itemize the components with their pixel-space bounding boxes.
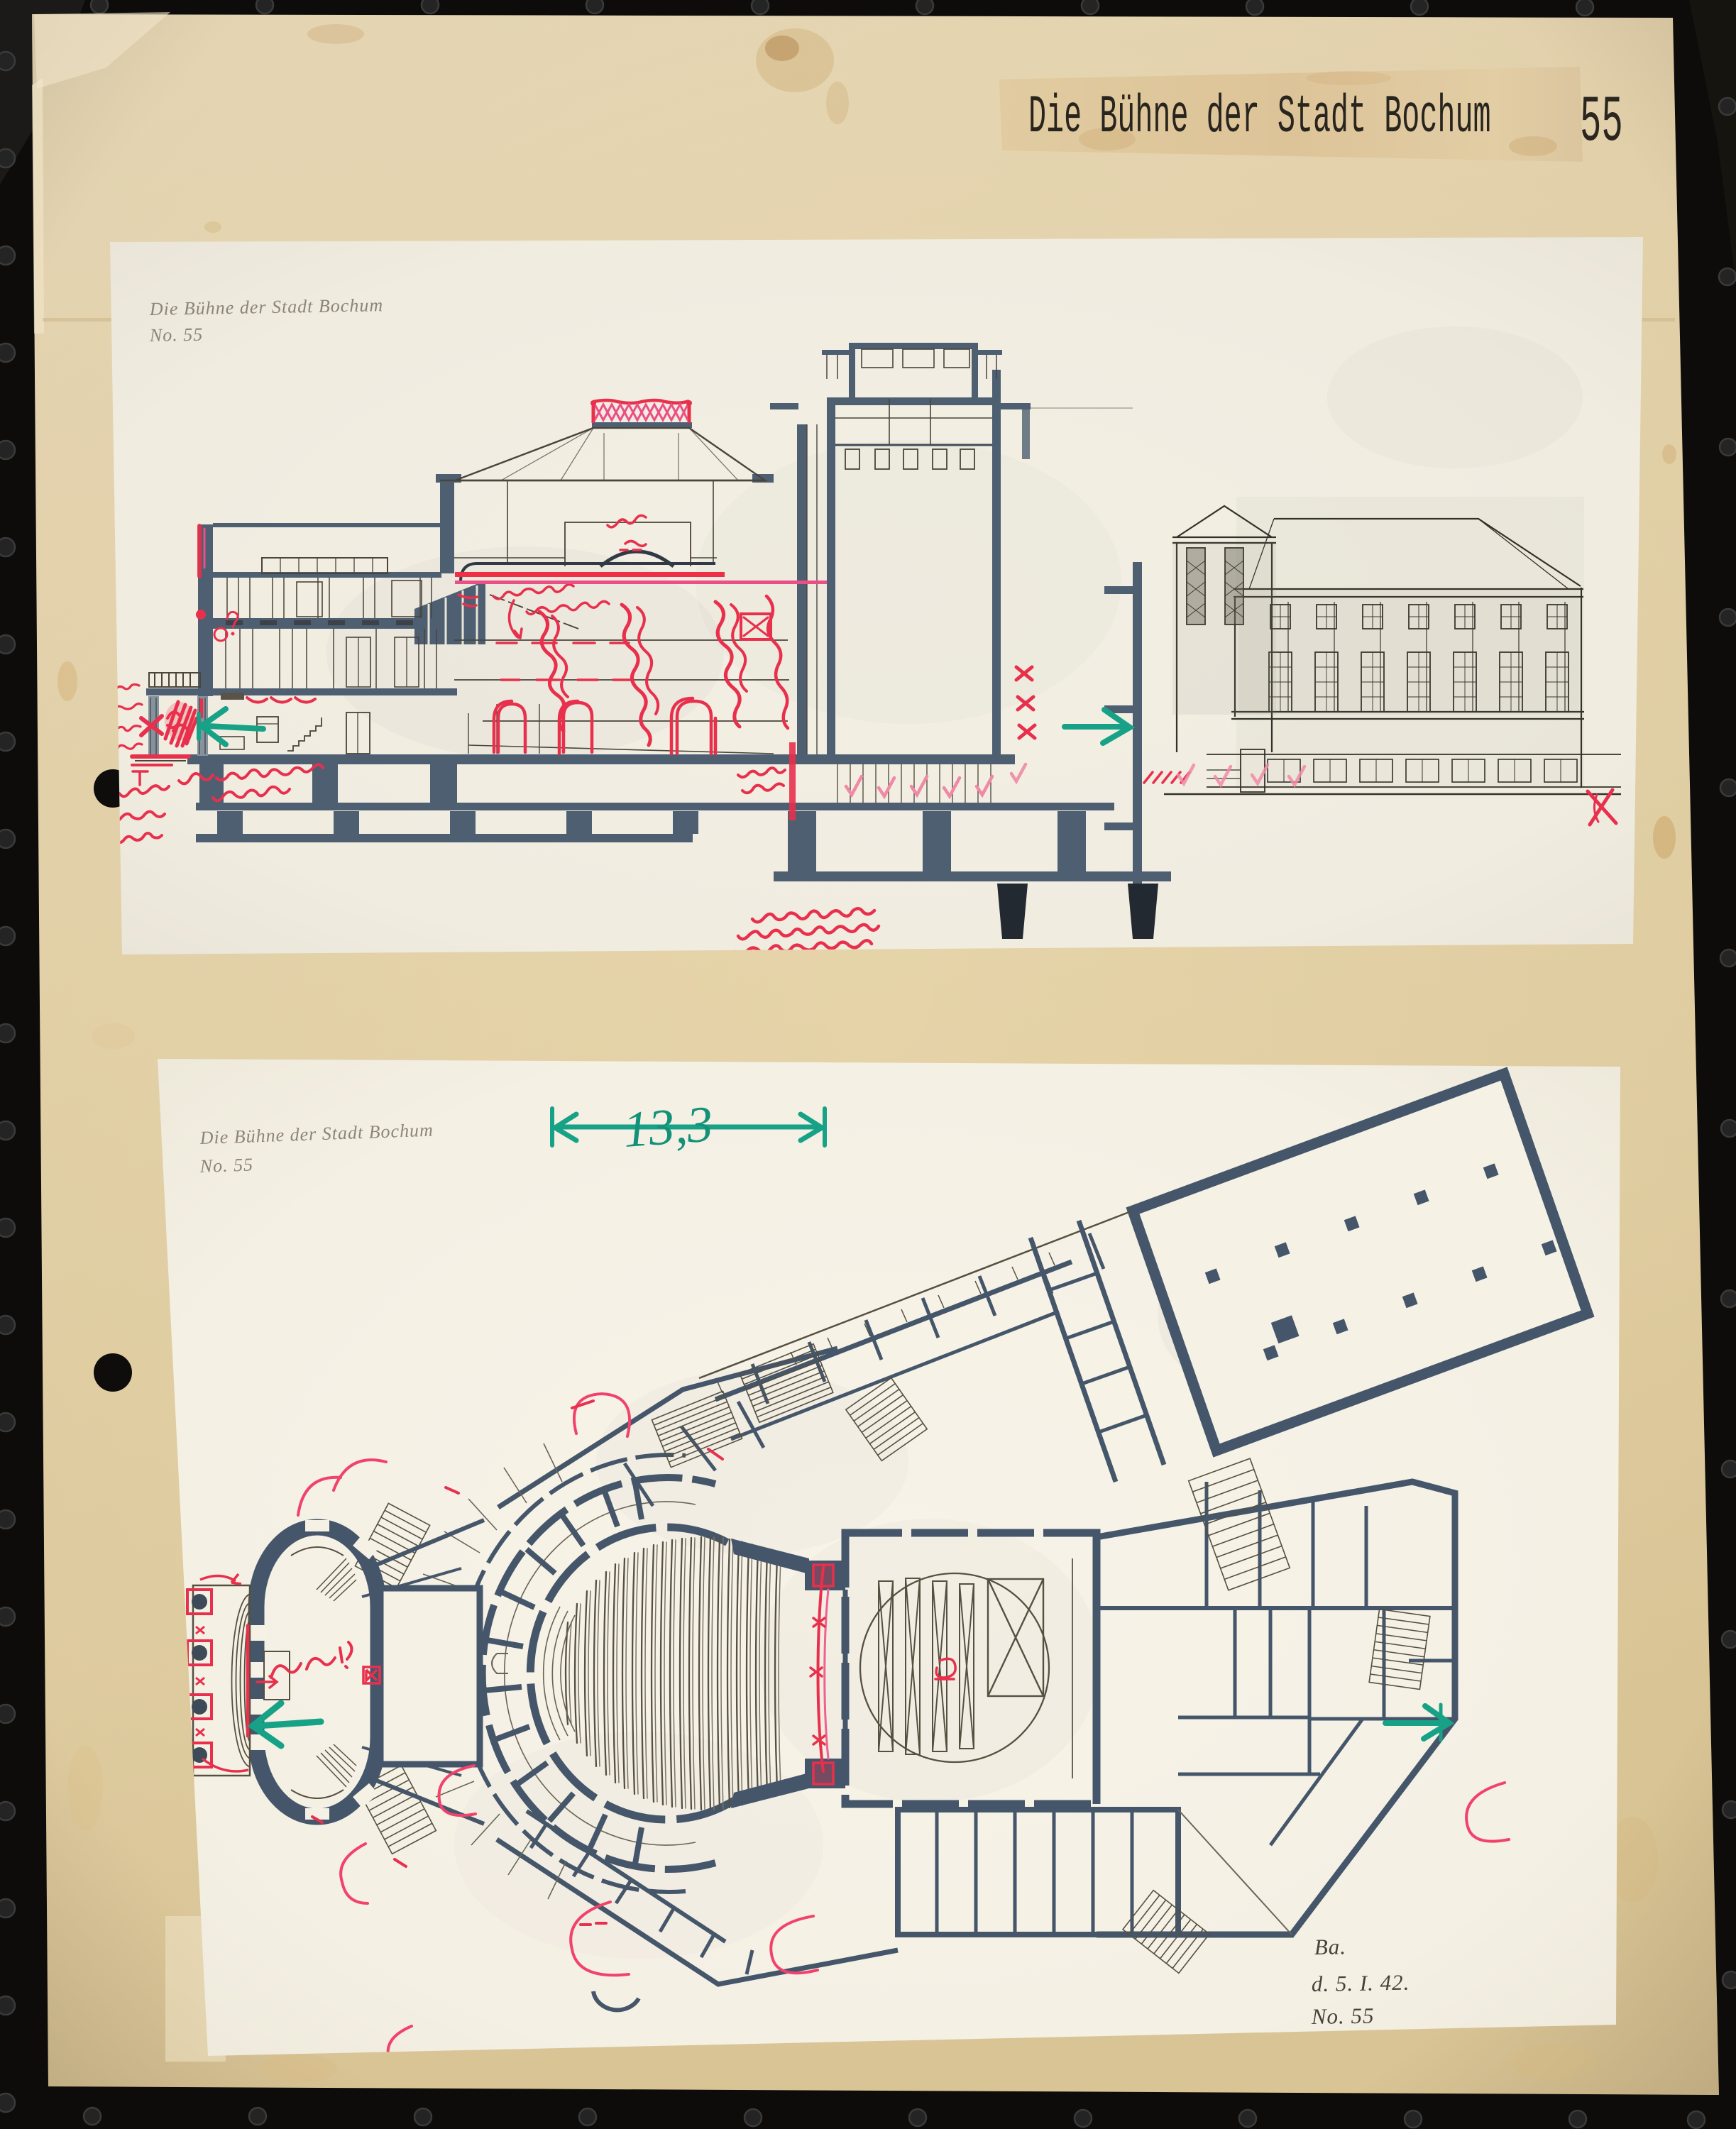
svg-text:Die Bühne der Stadt Bochum: Die Bühne der Stadt Bochum [149, 295, 384, 319]
svg-text:No. 55: No. 55 [199, 1154, 253, 1177]
svg-text:Ba.: Ba. [1314, 1934, 1347, 1959]
svg-text:13,3: 13,3 [622, 1095, 715, 1158]
svg-text:Die Bühne der Stadt Bochum: Die Bühne der Stadt Bochum [1028, 87, 1491, 148]
svg-text:d. 5. I. 42.: d. 5. I. 42. [1312, 1970, 1410, 1996]
svg-text:No. 55: No. 55 [1311, 2003, 1375, 2029]
svg-text:No. 55: No. 55 [149, 324, 204, 346]
svg-text:55: 55 [1580, 86, 1623, 160]
